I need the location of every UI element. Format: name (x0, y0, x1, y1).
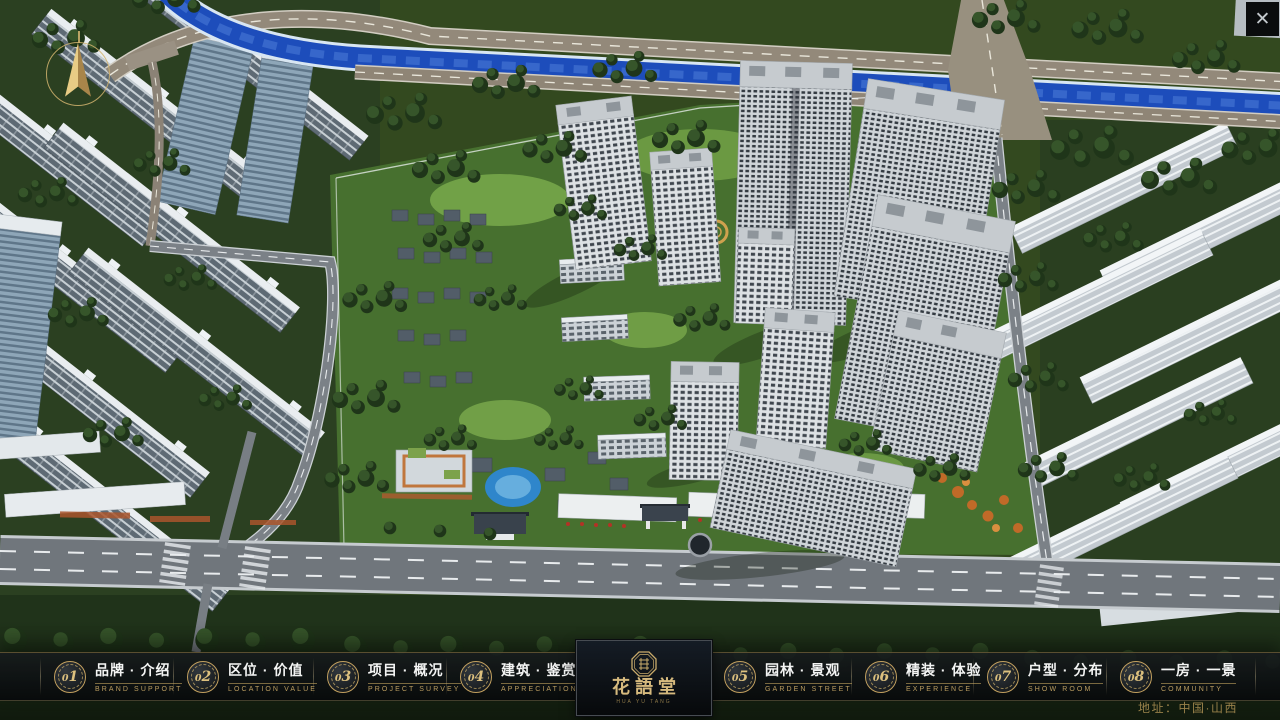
nav-badge-02: 02 (187, 661, 219, 693)
nav-item-brand[interactable]: 01 品牌 · 介绍BRAND SUPPORT (40, 653, 173, 700)
logo-title: 花語堂 (607, 679, 681, 697)
nav-number: 06 (873, 669, 889, 685)
nav-item-floorplan[interactable]: 07 户型 · 分布SHOW ROOM (973, 653, 1106, 700)
close-button[interactable]: ✕ (1246, 2, 1279, 36)
nav-label-zh: 区位 · 价值 (228, 660, 317, 684)
nav-item-location[interactable]: 02 区位 · 价值LOCATION VALUE (173, 653, 313, 700)
seal-emblem-icon (631, 651, 657, 677)
compass-stem (78, 31, 80, 43)
nav-badge-07: 07 (987, 661, 1019, 693)
nav-badge-04: 04 (460, 661, 492, 693)
nav-number: 05 (732, 669, 748, 685)
nav-badge-01: 01 (54, 661, 86, 693)
nav-item-views[interactable]: 08 一房 · 一景COMMUNITY (1106, 653, 1255, 700)
nav-label-zh: 一房 · 一景 (1161, 660, 1236, 684)
nav-label-en: COMMUNITY (1161, 686, 1236, 693)
nav-item-garden[interactable]: 05 园林 · 景观GARDEN STREET (710, 653, 851, 700)
nav-item-project[interactable]: 03 项目 · 概况PROJECT SURVEY (313, 653, 446, 700)
logo-tagline: HUA YU TANG (616, 699, 671, 705)
nav-badge-05: 05 (724, 661, 756, 693)
nav-label-zh: 户型 · 分布 (1028, 660, 1103, 684)
logo-panel[interactable]: 花語堂 HUA YU TANG (576, 640, 712, 716)
address-text: 地址：中国·山西 (1138, 699, 1238, 716)
nav-label-en: GARDEN STREET (765, 686, 852, 693)
compass-needle (60, 43, 96, 101)
nav-separator (1255, 658, 1256, 695)
nav-number: 04 (468, 669, 484, 685)
nav-label-en: EXPERIENCE (906, 686, 981, 693)
nav-label-en: APPRECIATION (501, 686, 578, 693)
nav-number: 03 (335, 669, 351, 685)
nav-item-architecture[interactable]: 04 建筑 · 鉴赏APPRECIATION (446, 653, 576, 700)
nav-number: 01 (62, 669, 78, 685)
close-icon: ✕ (1255, 8, 1271, 30)
nav-label-en: LOCATION VALUE (228, 686, 317, 693)
site-plan-map[interactable] (0, 0, 1280, 720)
nav-number: 02 (195, 669, 211, 685)
app-window: ✕ 01 品牌 · 介绍BRAND SUPPORT 02 区位 · 价值LOCA… (0, 0, 1280, 720)
nav-label-en: BRAND SUPPORT (95, 686, 182, 693)
nav-label-zh: 品牌 · 介绍 (95, 660, 182, 684)
nav-label-zh: 园林 · 景观 (765, 660, 852, 684)
nav-label-zh: 精装 · 体验 (906, 660, 981, 684)
nav-number: 08 (1128, 669, 1144, 685)
nav-badge-06: 06 (865, 661, 897, 693)
nav-number: 07 (995, 669, 1011, 685)
nav-badge-08: 08 (1120, 661, 1152, 693)
nav-label-zh: 建筑 · 鉴赏 (501, 660, 578, 684)
compass-icon (46, 42, 110, 106)
nav-badge-03: 03 (327, 661, 359, 693)
nav-label-en: SHOW ROOM (1028, 686, 1103, 693)
nav-item-interior[interactable]: 06 精装 · 体验EXPERIENCE (851, 653, 973, 700)
